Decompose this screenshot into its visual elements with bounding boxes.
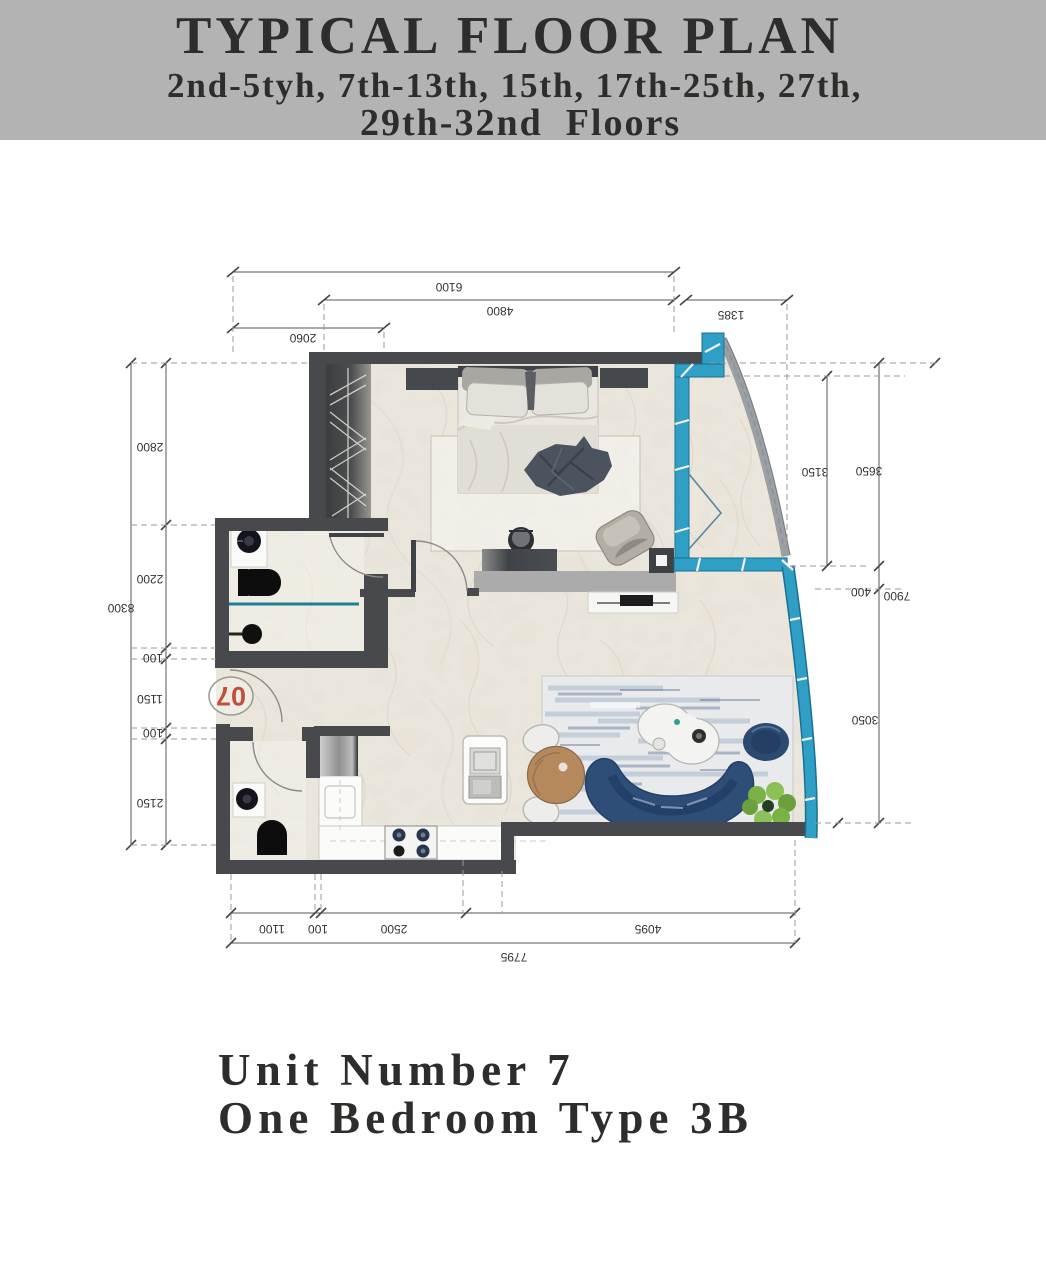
- svg-text:3150: 3150: [801, 465, 828, 479]
- svg-text:2150: 2150: [136, 796, 163, 810]
- svg-text:2200: 2200: [136, 572, 163, 586]
- svg-text:7900: 7900: [883, 589, 910, 603]
- svg-text:8300: 8300: [107, 601, 134, 615]
- svg-text:1385: 1385: [717, 308, 744, 322]
- svg-text:400: 400: [851, 585, 871, 599]
- svg-text:2060: 2060: [289, 331, 316, 345]
- svg-text:1150: 1150: [137, 692, 163, 706]
- svg-text:4800: 4800: [486, 304, 513, 318]
- svg-text:100: 100: [143, 651, 163, 665]
- svg-text:100: 100: [143, 726, 163, 740]
- svg-text:2800: 2800: [136, 440, 163, 454]
- svg-text:3050: 3050: [851, 713, 878, 727]
- svg-text:6100: 6100: [435, 280, 462, 294]
- svg-text:3650: 3650: [855, 464, 882, 478]
- svg-text:100: 100: [308, 922, 328, 936]
- svg-text:7795: 7795: [500, 950, 527, 964]
- svg-text:1100: 1100: [259, 922, 285, 936]
- svg-text:07: 07: [216, 681, 246, 711]
- svg-text:2500: 2500: [380, 922, 407, 936]
- svg-text:4095: 4095: [634, 922, 661, 936]
